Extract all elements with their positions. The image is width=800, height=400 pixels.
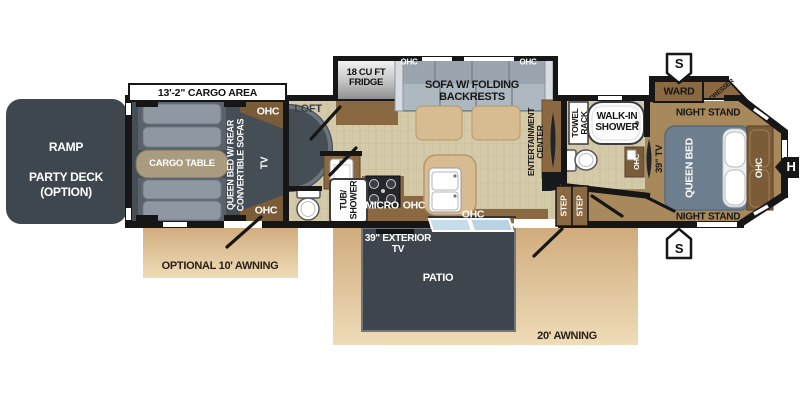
bedroom-furniture <box>654 81 773 210</box>
entry-steps <box>556 186 588 226</box>
fridge-shape <box>336 59 396 100</box>
patio-door-glass <box>428 217 516 231</box>
cargo-area-dimension: 13'-2" CARGO AREA <box>128 83 287 102</box>
pillow <box>725 170 745 205</box>
floorplan-canvas: 13'-2" CARGO AREA RAMP PARTY DECK (OPTIO… <box>0 0 800 400</box>
ottoman <box>416 106 462 140</box>
patio-deck <box>362 228 515 331</box>
ottoman <box>472 106 520 140</box>
towel-rack-shape <box>569 102 588 144</box>
wardrobe-shape <box>654 81 703 102</box>
floorplan-graphics <box>0 0 800 400</box>
tub-shower-shape <box>330 179 367 223</box>
cargo-table-shape <box>136 150 228 178</box>
exterior-tv-icon <box>376 229 414 234</box>
speaker-marker-bottom <box>667 229 691 258</box>
pillow <box>725 132 745 167</box>
ramp-party-deck <box>6 99 127 224</box>
